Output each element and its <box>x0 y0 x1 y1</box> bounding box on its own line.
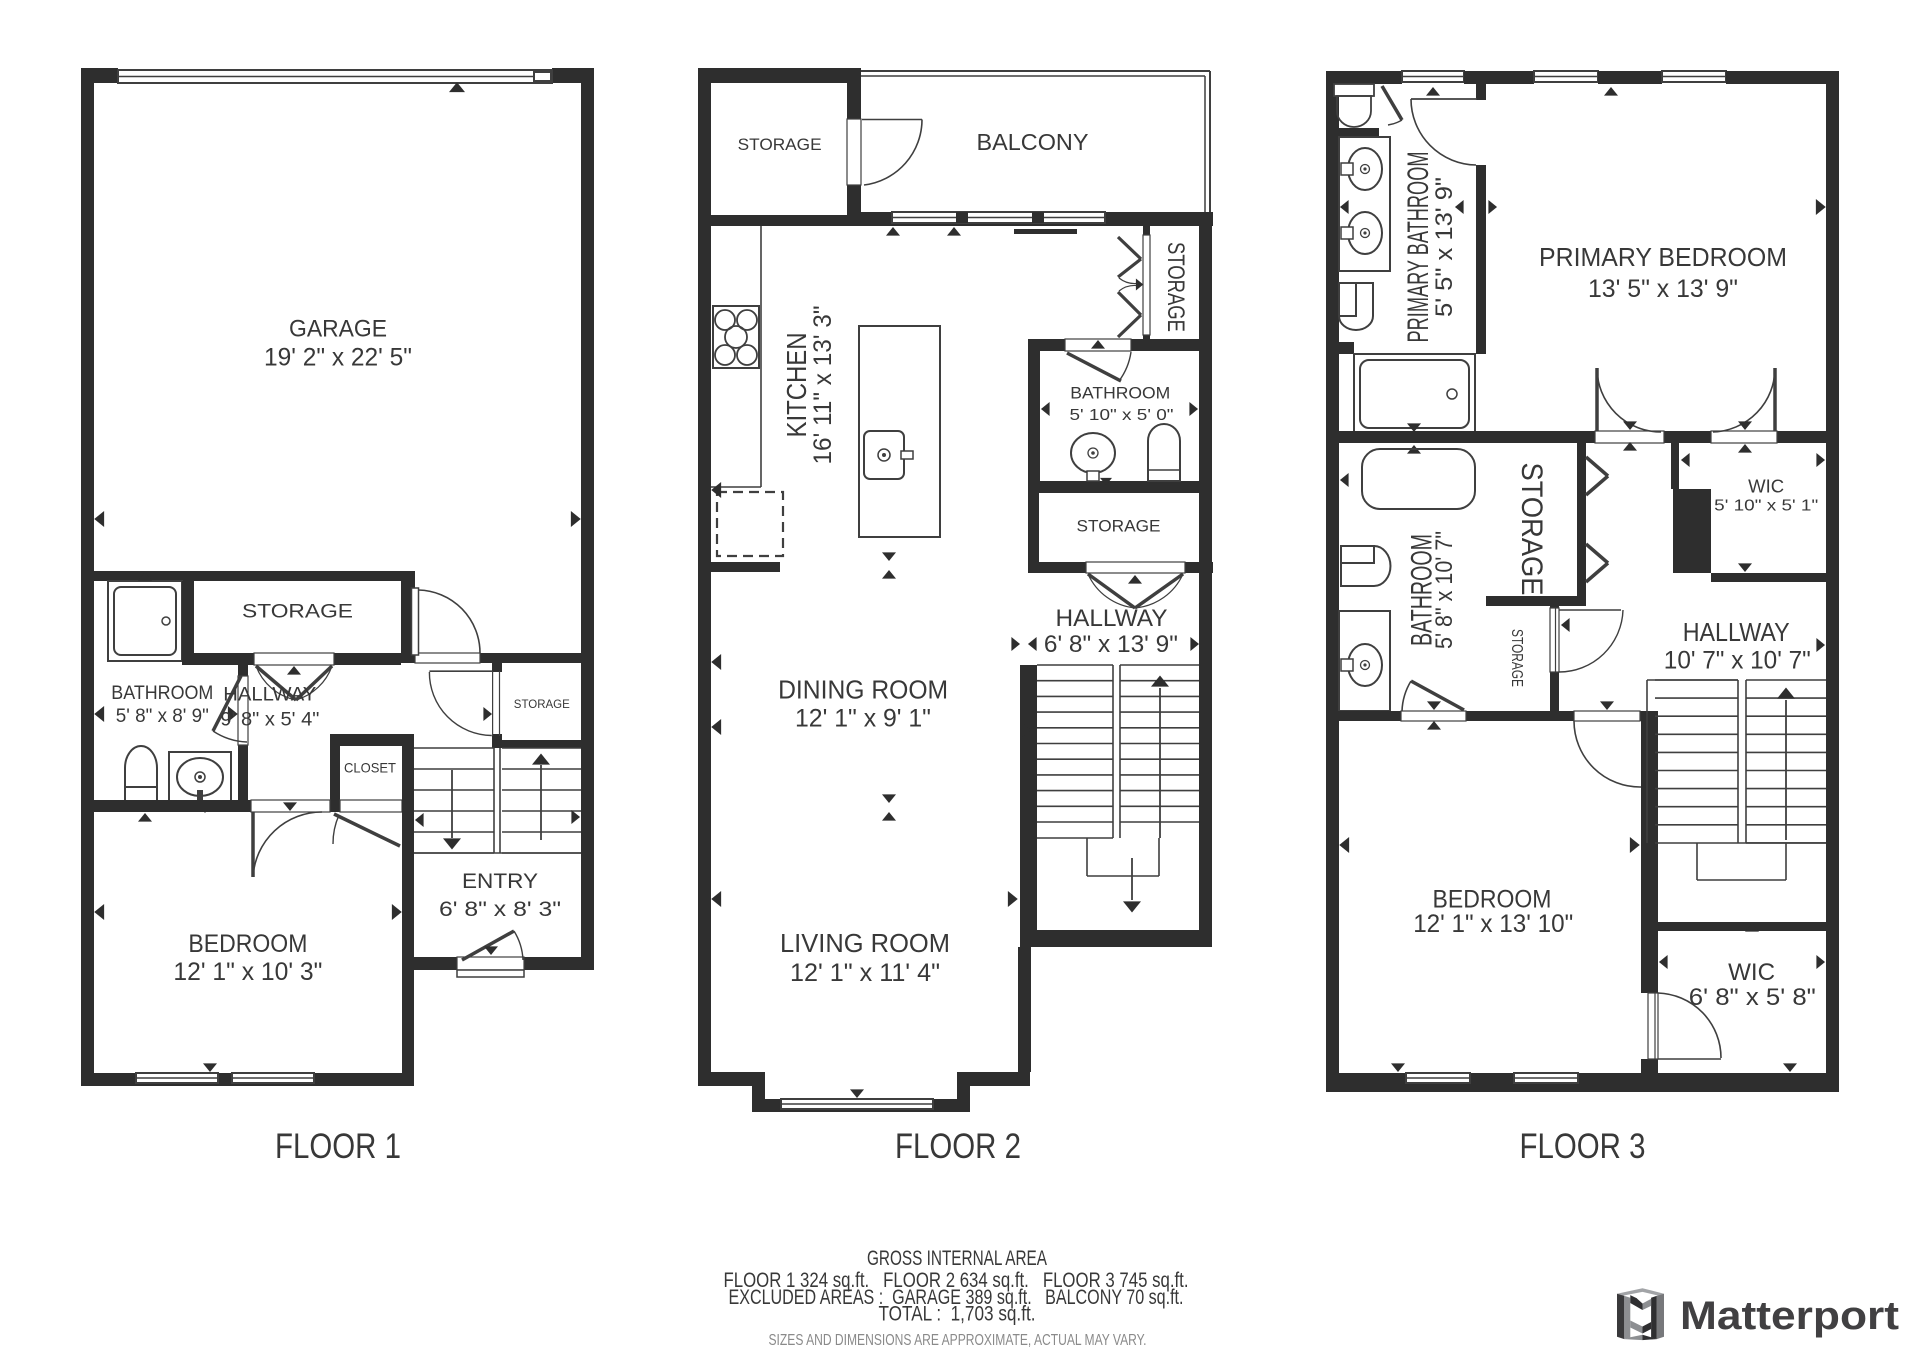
svg-text:HALLWAY: HALLWAY <box>1056 605 1168 632</box>
svg-text:TOTAL : 1,703 sq.ft.: TOTAL : 1,703 sq.ft. <box>879 1303 1036 1326</box>
svg-text:ENTRY: ENTRY <box>462 870 538 893</box>
svg-text:WIC: WIC <box>1748 477 1784 497</box>
svg-text:10' 7" x 10' 7": 10' 7" x 10' 7" <box>1664 646 1811 674</box>
svg-text:12' 1" x 13' 10": 12' 1" x 13' 10" <box>1413 910 1573 938</box>
svg-text:BATHROOM: BATHROOM <box>111 683 213 704</box>
svg-text:FLOOR 2: FLOOR 2 <box>895 1127 1021 1166</box>
svg-text:CLOSET: CLOSET <box>344 760 396 776</box>
svg-text:BEDROOM: BEDROOM <box>188 930 307 958</box>
svg-text:12' 1" x 9' 1": 12' 1" x 9' 1" <box>795 705 931 733</box>
svg-text:5' 8" x 10' 7": 5' 8" x 10' 7" <box>1431 531 1458 649</box>
svg-text:WIC: WIC <box>1728 959 1775 986</box>
svg-text:5' 10" x 5' 1": 5' 10" x 5' 1" <box>1714 497 1818 514</box>
svg-text:6' 8" x 5' 8": 6' 8" x 5' 8" <box>1689 984 1816 1011</box>
svg-text:6' 8" x 13' 9": 6' 8" x 13' 9" <box>1044 631 1178 658</box>
svg-text:LIVING ROOM: LIVING ROOM <box>780 928 950 958</box>
svg-text:STORAGE: STORAGE <box>514 697 570 711</box>
svg-text:13' 5" x 13' 9": 13' 5" x 13' 9" <box>1588 275 1738 303</box>
svg-text:STORAGE: STORAGE <box>1515 463 1548 596</box>
svg-text:6' 8" x 8' 3": 6' 8" x 8' 3" <box>439 898 561 921</box>
svg-text:STORAGE: STORAGE <box>738 135 822 154</box>
svg-text:GARAGE: GARAGE <box>289 316 387 343</box>
svg-text:PRIMARY BEDROOM: PRIMARY BEDROOM <box>1539 242 1787 272</box>
svg-text:12' 1" x 11' 4": 12' 1" x 11' 4" <box>790 959 940 987</box>
svg-text:FLOOR 1: FLOOR 1 <box>275 1127 401 1166</box>
svg-text:5' 5" x 13' 9": 5' 5" x 13' 9" <box>1431 177 1458 317</box>
svg-text:GROSS INTERNAL AREA: GROSS INTERNAL AREA <box>867 1247 1047 1270</box>
svg-text:KITCHEN: KITCHEN <box>781 333 812 438</box>
svg-text:FLOOR 3: FLOOR 3 <box>1520 1127 1646 1166</box>
svg-text:Matterport: Matterport <box>1680 1294 1899 1338</box>
svg-text:BATHROOM: BATHROOM <box>1070 383 1170 402</box>
svg-text:19' 2" x 22' 5": 19' 2" x 22' 5" <box>264 344 412 372</box>
svg-text:SIZES AND DIMENSIONS ARE APPRO: SIZES AND DIMENSIONS ARE APPROXIMATE, AC… <box>769 1332 1147 1349</box>
svg-text:HALLWAY: HALLWAY <box>1683 617 1790 647</box>
svg-text:STORAGE: STORAGE <box>242 602 353 623</box>
svg-text:DINING ROOM: DINING ROOM <box>778 674 948 704</box>
svg-text:9' 8" x 5' 4": 9' 8" x 5' 4" <box>220 710 319 731</box>
svg-text:12' 1" x 10' 3": 12' 1" x 10' 3" <box>173 958 322 986</box>
svg-text:STORAGE: STORAGE <box>1508 629 1525 687</box>
svg-text:STORAGE: STORAGE <box>1162 242 1189 332</box>
svg-text:HALLWAY: HALLWAY <box>223 685 316 706</box>
svg-text:5' 8" x 8' 9": 5' 8" x 8' 9" <box>116 706 209 727</box>
svg-text:BALCONY: BALCONY <box>977 129 1089 155</box>
svg-text:STORAGE: STORAGE <box>1077 517 1161 536</box>
svg-text:5' 10" x 5' 0": 5' 10" x 5' 0" <box>1070 407 1174 424</box>
svg-text:16' 11" x 13' 3": 16' 11" x 13' 3" <box>809 306 837 465</box>
